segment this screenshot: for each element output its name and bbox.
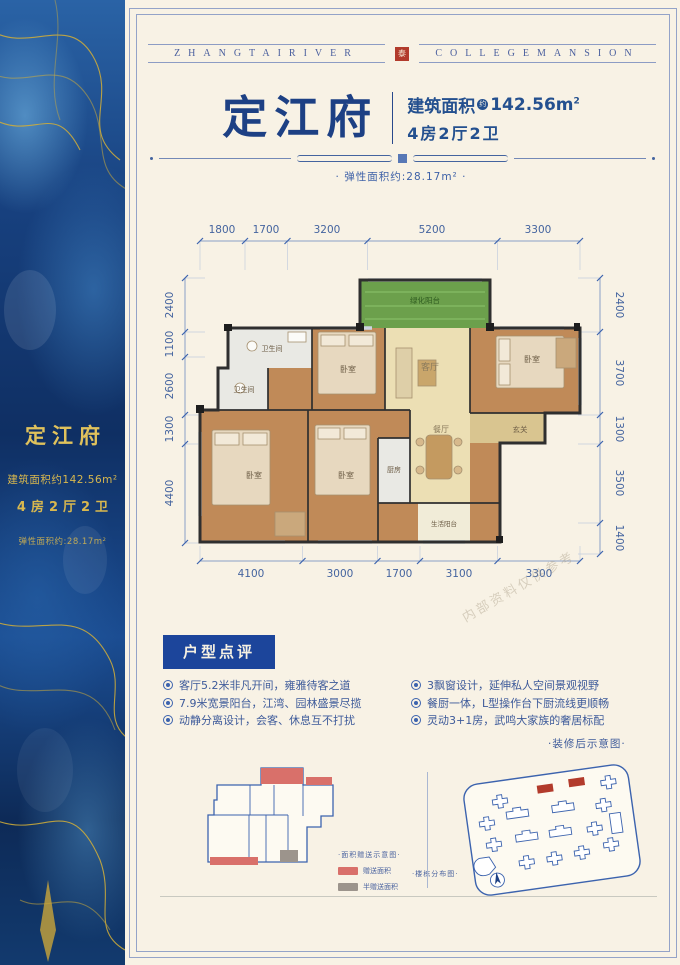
bullet-item: 灵动3+1房，武鸣大家族的奢居标配 (411, 714, 655, 727)
site-plan (452, 760, 652, 900)
svg-text:1300: 1300 (164, 416, 176, 443)
svg-text:2400: 2400 (613, 292, 625, 319)
layout-value: 4房2厅2卫 (407, 120, 580, 144)
sidebar-info: 定江府 建筑面积约142.56m² 4房2厅2卫 弹性面积约:28.17m² (0, 420, 125, 547)
svg-text:1400: 1400 (613, 525, 625, 552)
legend-item-gift: 赠送面积 (338, 866, 400, 876)
svg-text:餐厅: 餐厅 (433, 425, 449, 434)
bullet-ring-icon (411, 715, 421, 725)
bullet-item: 餐厨一体，L型操作台下厨流线更顺畅 (411, 697, 655, 710)
bullet-ring-icon (411, 698, 421, 708)
banner-right-text: COLLEGEMANSION (419, 44, 656, 63)
top-banner: ZHANGTAIRIVER 泰 COLLEGEMANSION (148, 44, 656, 63)
banner-left-text: ZHANGTAIRIVER (148, 44, 385, 63)
svg-text:2600: 2600 (164, 373, 176, 400)
bullet-ring-icon (163, 715, 173, 725)
bullet-item: 动静分离设计，会客、休息互不打扰 (163, 714, 401, 727)
bullet-ring-icon (163, 698, 173, 708)
svg-text:4100: 4100 (238, 568, 265, 580)
review-bullets: 客厅5.2米非凡开间，雍雅待客之道 7.9米宽景阳台，江湾、园林盛景尽揽 动静分… (163, 679, 655, 727)
svg-text:卧室: 卧室 (246, 470, 262, 480)
brand-seal-icon: 泰 (395, 47, 409, 61)
svg-text:1700: 1700 (253, 224, 280, 236)
svg-text:3100: 3100 (446, 568, 473, 580)
bottom-separator (160, 896, 657, 897)
sidebar-area: 建筑面积约142.56m² (0, 472, 125, 487)
svg-text:卧室: 卧室 (524, 354, 540, 364)
page-title: 定江府 (222, 93, 378, 143)
sidebar-layout: 4房2厅2卫 (0, 496, 125, 515)
svg-text:厨房: 厨房 (387, 465, 401, 474)
bullet-ring-icon (411, 680, 421, 690)
svg-text:1700: 1700 (386, 568, 413, 580)
svg-text:卫生间: 卫生间 (234, 385, 255, 394)
svg-text:绿化阳台: 绿化阳台 (410, 295, 440, 305)
flex-area-note: · 弹性面积约:28.17m² · (140, 169, 662, 184)
area-label: 建筑面积 (407, 92, 475, 117)
sidebar-project-name: 定江府 (0, 420, 125, 450)
svg-text:卫生间: 卫生间 (262, 344, 283, 353)
legend-title: ·面积赠送示意图· (338, 850, 400, 860)
floorplan: 1800 1700 3200 5200 3300 4100 3000 1700 … (160, 220, 630, 600)
svg-text:3500: 3500 (613, 470, 625, 497)
panel-divider (427, 772, 428, 888)
svg-text:3300: 3300 (525, 224, 552, 236)
svg-text:4400: 4400 (164, 480, 176, 507)
svg-text:生活阳台: 生活阳台 (431, 519, 457, 528)
svg-text:客厅: 客厅 (421, 361, 439, 373)
svg-text:1800: 1800 (209, 224, 236, 236)
svg-text:卧室: 卧室 (338, 470, 354, 480)
svg-text:3700: 3700 (613, 360, 625, 387)
area-value: 142.56m2 (490, 95, 580, 115)
divider-square-icon (398, 154, 407, 163)
art-sidebar: 定江府 建筑面积约142.56m² 4房2厅2卫 弹性面积约:28.17m² (0, 0, 125, 965)
svg-text:3000: 3000 (327, 568, 354, 580)
svg-text:玄关: 玄关 (513, 424, 528, 434)
bullet-item: 7.9米宽景阳台，江湾、园林盛景尽揽 (163, 697, 401, 710)
gift-area-miniplan (200, 762, 340, 880)
svg-text:5200: 5200 (419, 224, 446, 236)
decorative-divider (150, 154, 655, 163)
legend-item-halfgift: 半赠送面积 (338, 882, 400, 892)
sidebar-flex-area: 弹性面积约:28.17m² (0, 535, 125, 547)
legend-gray-swatch-icon (338, 883, 358, 891)
svg-text:1300: 1300 (613, 416, 625, 443)
legend-red-swatch-icon (338, 867, 358, 875)
svg-text:卧室: 卧室 (340, 364, 356, 374)
decoration-note: ·装修后示意图· (548, 736, 626, 751)
title-specs: 建筑面积 约 142.56m2 4房2厅2卫 (407, 92, 580, 144)
svg-text:1100: 1100 (164, 331, 176, 358)
bullet-item: 客厅5.2米非凡开间，雍雅待客之道 (163, 679, 401, 692)
title-divider (392, 92, 393, 144)
miniplan-legend: ·面积赠送示意图· 赠送面积 半赠送面积 (338, 850, 400, 892)
approx-circle-icon: 约 (477, 99, 488, 110)
svg-text:2400: 2400 (164, 292, 176, 319)
title-block: 定江府 建筑面积 约 142.56m2 4房2厅2卫 (140, 92, 662, 144)
review-section-title: 户型点评 (163, 635, 275, 669)
svg-text:3200: 3200 (314, 224, 341, 236)
bullet-ring-icon (163, 680, 173, 690)
bullet-item: 3飘窗设计，延伸私人空间景观视野 (411, 679, 655, 692)
